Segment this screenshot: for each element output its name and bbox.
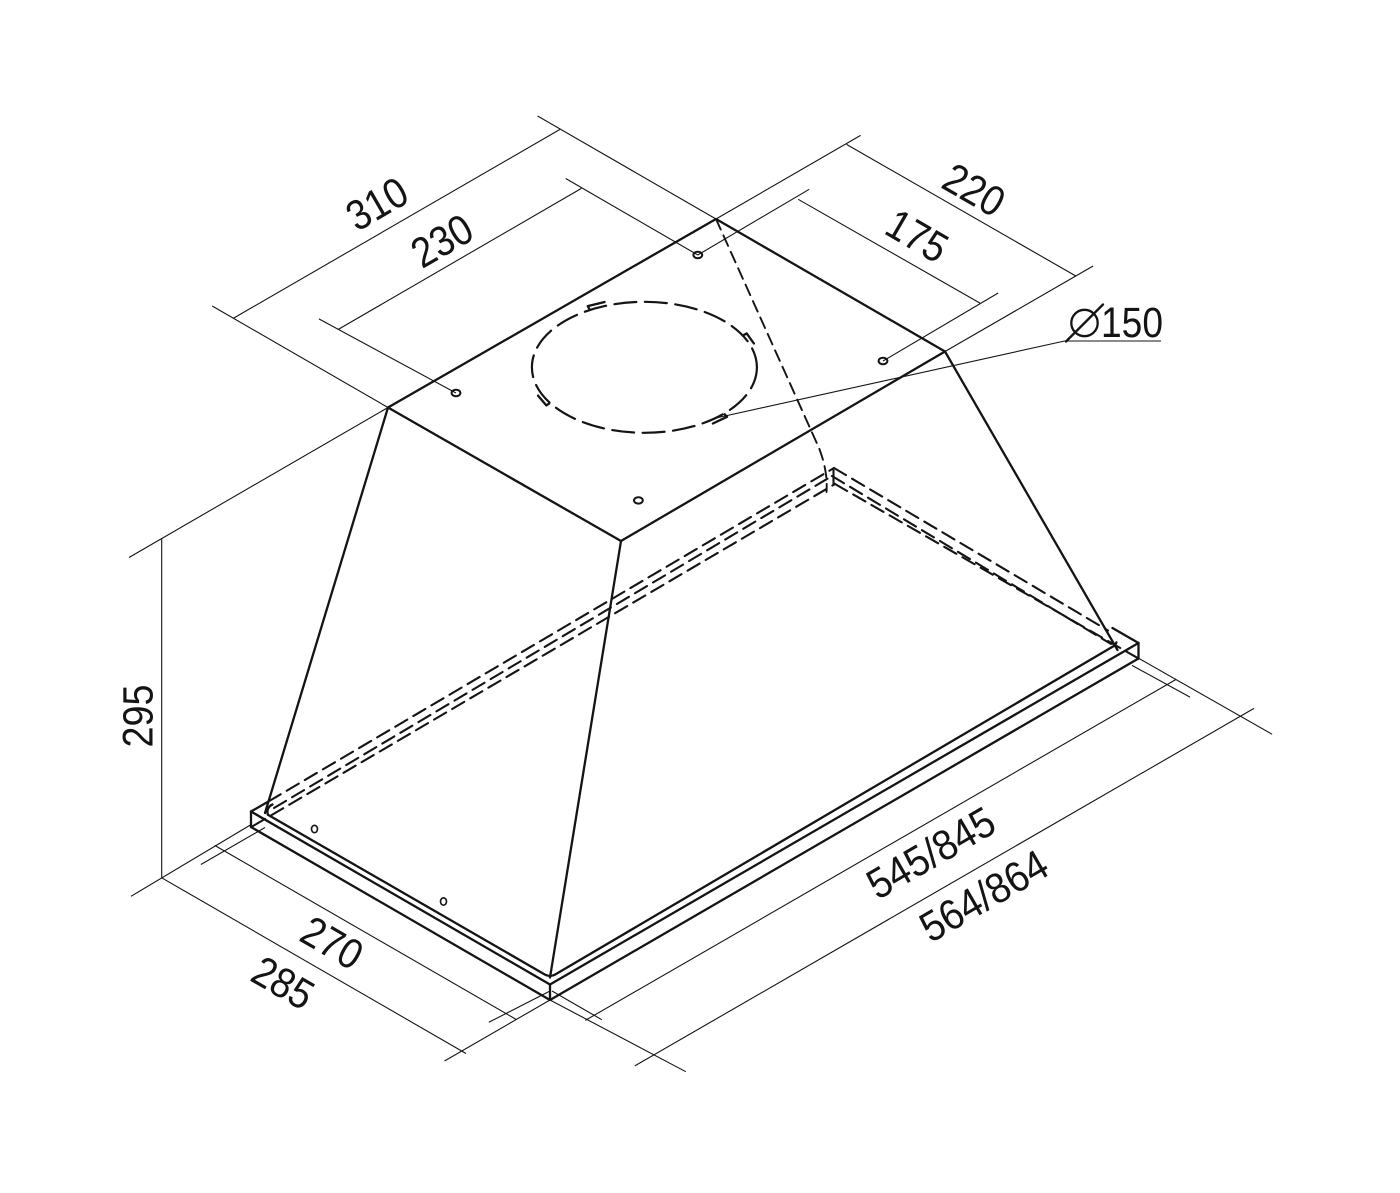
svg-text:310: 310 — [338, 169, 416, 241]
svg-text:150: 150 — [1101, 300, 1163, 347]
svg-text:220: 220 — [934, 155, 1012, 227]
svg-text:295: 295 — [115, 685, 162, 748]
svg-text:285: 285 — [243, 948, 321, 1020]
svg-text:230: 230 — [403, 206, 481, 278]
svg-text:175: 175 — [877, 201, 955, 273]
